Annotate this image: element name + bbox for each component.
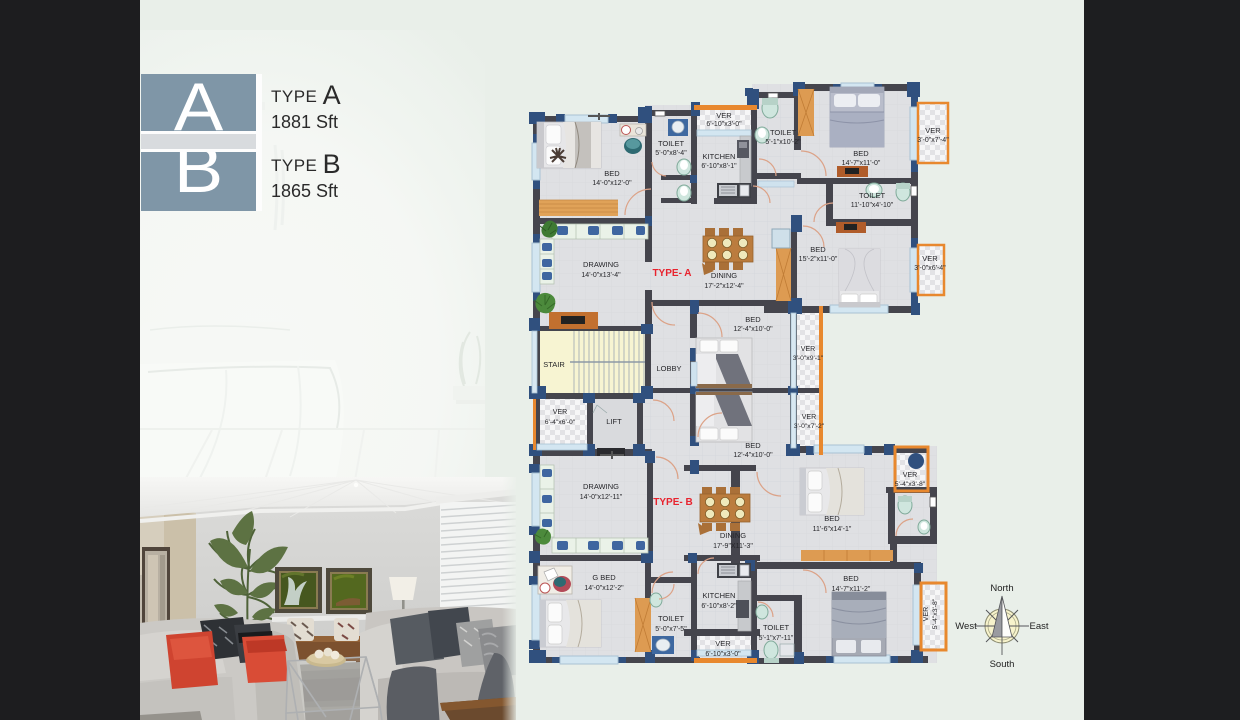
svg-text:VER: VER bbox=[715, 639, 731, 648]
svg-text:BED: BED bbox=[810, 245, 826, 254]
svg-text:VER: VER bbox=[903, 472, 917, 479]
svg-text:14'-7"x11'-2": 14'-7"x11'-2" bbox=[832, 586, 871, 593]
svg-text:BED: BED bbox=[824, 514, 840, 523]
svg-text:11'-10"x4'-10": 11'-10"x4'-10" bbox=[851, 202, 894, 209]
svg-text:STAIR: STAIR bbox=[543, 360, 565, 369]
svg-text:DINING: DINING bbox=[711, 271, 737, 280]
svg-text:BED: BED bbox=[745, 315, 761, 324]
svg-text:BED: BED bbox=[853, 149, 869, 158]
svg-text:14'-0"x12'-0": 14'-0"x12'-0" bbox=[592, 180, 632, 187]
svg-text:South: South bbox=[990, 659, 1015, 670]
svg-text:5'-0"x7'-5": 5'-0"x7'-5" bbox=[655, 626, 687, 633]
svg-text:TOILET: TOILET bbox=[770, 128, 797, 137]
svg-text:TYPE- A: TYPE- A bbox=[652, 268, 691, 279]
svg-text:TYPE- B: TYPE- B bbox=[653, 497, 692, 508]
svg-text:VER: VER bbox=[923, 607, 930, 621]
svg-text:5'-4"x3'-8": 5'-4"x3'-8" bbox=[895, 481, 926, 488]
svg-text:14'-0"x12'-2": 14'-0"x12'-2" bbox=[584, 585, 624, 592]
svg-text:17'-9"X11'-3": 17'-9"X11'-3" bbox=[713, 543, 753, 550]
svg-text:6'-10"x8'-2": 6'-10"x8'-2" bbox=[701, 603, 737, 610]
svg-text:KITCHEN: KITCHEN bbox=[703, 591, 736, 600]
svg-text:LIFT: LIFT bbox=[606, 417, 622, 426]
svg-text:5'-0"x8'-4": 5'-0"x8'-4" bbox=[655, 150, 687, 157]
svg-text:G BED: G BED bbox=[592, 573, 616, 582]
svg-text:East: East bbox=[1029, 621, 1048, 632]
svg-text:TOILET: TOILET bbox=[859, 191, 886, 200]
svg-text:3'-0"x6'-4": 3'-0"x6'-4" bbox=[914, 265, 946, 272]
svg-text:5'-4"x3'-8": 5'-4"x3'-8" bbox=[932, 598, 939, 629]
svg-text:KITCHEN: KITCHEN bbox=[703, 152, 736, 161]
svg-text:6'-10"x3'-0": 6'-10"x3'-0" bbox=[705, 651, 741, 658]
svg-text:14'-0"x13'-4": 14'-0"x13'-4" bbox=[581, 272, 621, 279]
svg-text:14'-7"x11'-0": 14'-7"x11'-0" bbox=[842, 160, 881, 167]
svg-text:3'-0"x9'-1": 3'-0"x9'-1" bbox=[793, 355, 824, 362]
svg-text:West: West bbox=[955, 621, 977, 632]
svg-text:TOILET: TOILET bbox=[658, 139, 685, 148]
svg-text:BED: BED bbox=[604, 169, 620, 178]
svg-text:VER: VER bbox=[925, 126, 941, 135]
svg-text:6'-4"x6'-0": 6'-4"x6'-0" bbox=[545, 419, 576, 426]
svg-text:17'-2"x12'-4": 17'-2"x12'-4" bbox=[704, 283, 744, 290]
svg-text:LOBBY: LOBBY bbox=[656, 364, 681, 373]
svg-text:15'-2"x11'-0": 15'-2"x11'-0" bbox=[799, 256, 838, 263]
svg-text:DINING: DINING bbox=[720, 531, 746, 540]
svg-text:5'-1"x7'-11": 5'-1"x7'-11" bbox=[759, 635, 794, 642]
svg-text:6'-10"x8'-1": 6'-10"x8'-1" bbox=[701, 163, 737, 170]
svg-text:TOILET: TOILET bbox=[763, 623, 790, 632]
svg-text:VER: VER bbox=[716, 111, 732, 120]
svg-text:BED: BED bbox=[745, 441, 761, 450]
svg-text:VER: VER bbox=[802, 414, 816, 421]
svg-text:3'-0"x7'-2": 3'-0"x7'-2" bbox=[794, 423, 825, 430]
svg-text:BED: BED bbox=[843, 574, 859, 583]
svg-text:North: North bbox=[990, 583, 1013, 594]
svg-text:DRAWING: DRAWING bbox=[583, 482, 619, 491]
svg-text:6'-10"x3'-0": 6'-10"x3'-0" bbox=[706, 121, 742, 128]
svg-text:VER: VER bbox=[553, 409, 567, 416]
svg-text:12'-4"x10'-0": 12'-4"x10'-0" bbox=[733, 452, 773, 459]
svg-text:14'-0"x12'-11": 14'-0"x12'-11" bbox=[580, 494, 623, 501]
svg-text:5'-1"x10'-2": 5'-1"x10'-2" bbox=[765, 139, 801, 146]
svg-text:VER: VER bbox=[922, 254, 938, 263]
svg-text:3'-0"x7'-4": 3'-0"x7'-4" bbox=[917, 137, 949, 144]
svg-text:11'-6"x14'-1": 11'-6"x14'-1" bbox=[813, 526, 852, 533]
svg-text:12'-4"x10'-0": 12'-4"x10'-0" bbox=[733, 326, 773, 333]
svg-text:VER: VER bbox=[801, 346, 815, 353]
svg-text:DRAWING: DRAWING bbox=[583, 260, 619, 269]
svg-text:TOILET: TOILET bbox=[658, 614, 685, 623]
